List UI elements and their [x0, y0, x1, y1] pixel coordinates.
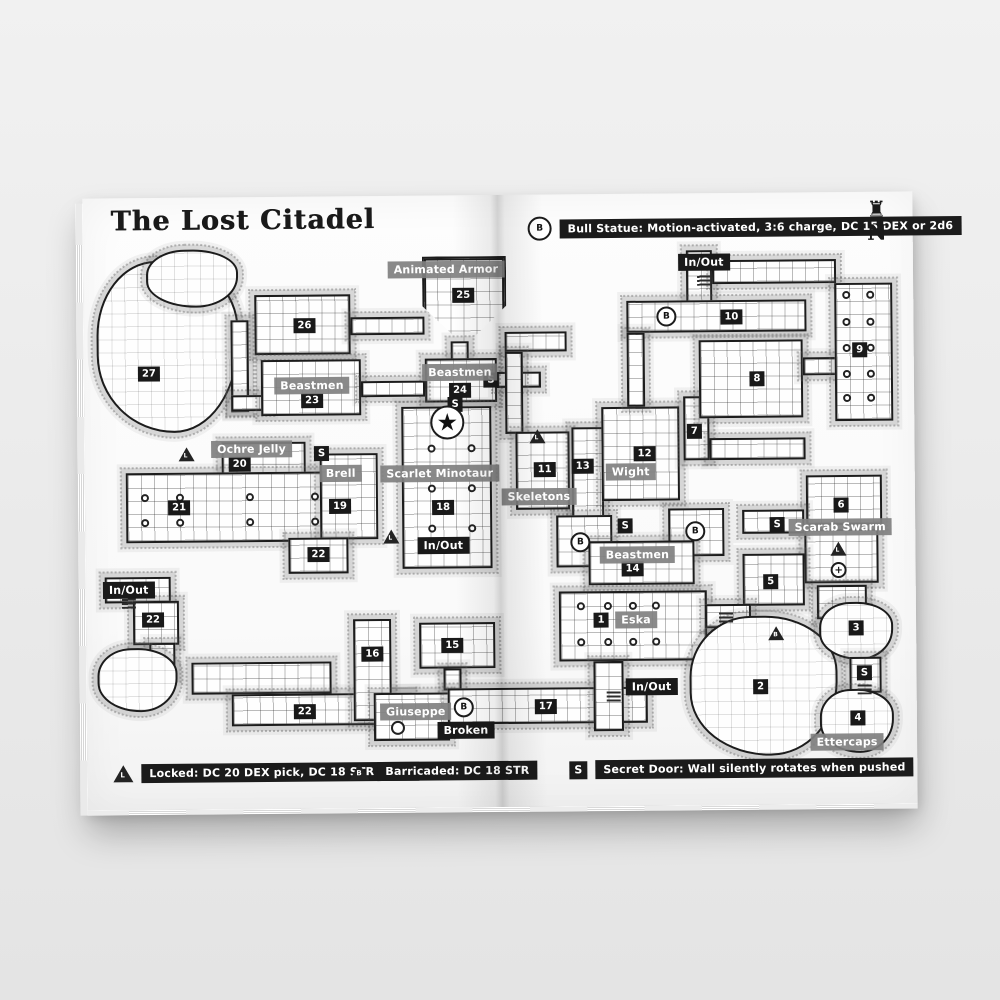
- room-number-19: 19: [329, 499, 351, 514]
- door-marker-l: L: [830, 542, 846, 556]
- room-number-16: 16: [361, 647, 383, 662]
- secret-door-marker: S: [857, 665, 872, 680]
- room-number-2: 2: [753, 679, 768, 694]
- room-number-6: 6: [833, 497, 848, 512]
- hall-21: [126, 471, 341, 543]
- stairs-marker: [697, 275, 711, 286]
- room-label: Wight: [606, 463, 656, 480]
- open-book-spread: The Lost Citadel B Bull Statue: Motion-a…: [82, 191, 917, 810]
- pillar-column: [866, 318, 874, 326]
- map-note-label: In/Out: [418, 537, 470, 554]
- corridor-7-right: [709, 437, 805, 460]
- door-marker-b: B: [768, 626, 784, 640]
- room-number-13: 13: [572, 459, 594, 474]
- corridor-10: [626, 299, 806, 333]
- map-layer: BBBBSSSSSSLLLLB★+25262723241098720211918…: [82, 191, 917, 810]
- corridor-top-right: [712, 259, 836, 284]
- room-label: Eska: [615, 611, 657, 628]
- room-label: Scarab Swarm: [789, 518, 892, 536]
- secret-door-legend-icon: S: [569, 761, 587, 779]
- secret-door-marker: S: [314, 446, 329, 461]
- door-marker-l: L: [529, 429, 545, 443]
- pillar-column: [246, 493, 254, 501]
- compass-north-letter: N: [855, 222, 899, 244]
- bull-statue-marker: B: [685, 521, 705, 541]
- pillar-column: [843, 344, 851, 352]
- citadel-tower-icon: ♜: [854, 200, 898, 222]
- pillar-column: [843, 394, 851, 402]
- pillar-column: [867, 394, 875, 402]
- statue-cross-marker: +: [831, 562, 847, 578]
- pillar-column: [866, 291, 874, 299]
- map-note-label: In/Out: [678, 253, 730, 270]
- room-label: Ettercaps: [810, 733, 883, 751]
- map-note-label: Broken: [437, 722, 494, 739]
- room-number-5: 5: [763, 574, 778, 589]
- room-label: Beastmen: [422, 364, 498, 382]
- room-number-17: 17: [535, 699, 557, 714]
- pillar-column: [428, 445, 436, 453]
- cave-22: [97, 648, 178, 713]
- room-label: Beastmen: [600, 546, 676, 564]
- pillar-column: [468, 444, 476, 452]
- pillar-column: [842, 318, 850, 326]
- pillar-column: [311, 518, 319, 526]
- room-number-23: 23: [301, 393, 323, 408]
- pillar-column: [843, 370, 851, 378]
- pillar-column: [468, 484, 476, 492]
- pillar-column: [311, 493, 319, 501]
- room-number-22: 22: [294, 704, 316, 719]
- room-number-4: 4: [850, 710, 865, 725]
- stairs-marker: [719, 611, 733, 622]
- pillar-column: [141, 494, 149, 502]
- room-number-8: 8: [749, 371, 764, 386]
- pillar-column: [428, 525, 436, 533]
- room-number-22: 22: [307, 547, 329, 562]
- corridor-22-c: [191, 661, 331, 694]
- pillar-column: [629, 638, 637, 646]
- corridor-23-24: [361, 381, 425, 398]
- room-number-1: 1: [593, 613, 608, 628]
- cave-27-top: [146, 249, 239, 308]
- map-note-label: In/Out: [103, 582, 155, 599]
- room-number-15: 15: [441, 638, 463, 653]
- pillar-column: [867, 370, 875, 378]
- stairs-marker: [858, 683, 872, 694]
- door-marker-l: L: [383, 529, 399, 543]
- room-number-18: 18: [432, 500, 454, 515]
- compass-rose: ♜ N: [854, 200, 898, 244]
- room-number-21: 21: [168, 500, 190, 515]
- room-number-11: 11: [534, 462, 556, 477]
- stairs-marker: [122, 598, 136, 609]
- pillar-column: [629, 602, 637, 610]
- bull-statue-marker: B: [656, 306, 676, 326]
- pillar-column: [428, 485, 436, 493]
- room-number-20: 20: [229, 457, 251, 472]
- corridor-center-top: [505, 331, 567, 352]
- corridor-26-25: [350, 317, 424, 336]
- legend-bull-statue-text: Bull Statue: Motion-activated, 3:6 charg…: [560, 215, 962, 238]
- room-number-7: 7: [687, 424, 702, 439]
- corridor-10-down: [627, 333, 646, 407]
- pillar-column: [652, 602, 660, 610]
- pillar-column: [842, 291, 850, 299]
- pillar-column: [867, 344, 875, 352]
- room-label: Giuseppe: [380, 703, 452, 721]
- secret-door-marker: S: [770, 517, 785, 532]
- pillar-column: [604, 638, 612, 646]
- room-label: Brell: [320, 465, 362, 482]
- locked-door-legend-icon: L: [113, 765, 133, 782]
- legend-secret-door: S Secret Door: Wall silently rotates whe…: [569, 757, 913, 779]
- room-number-10: 10: [720, 309, 742, 324]
- corridor-15-down: [443, 668, 461, 690]
- room-number-22: 22: [142, 612, 164, 627]
- barricaded-door-legend-icon: B: [349, 763, 369, 780]
- room-label: Scarlet Minotaur: [380, 465, 499, 483]
- pillar-column: [246, 518, 254, 526]
- pillar-column: [652, 638, 660, 646]
- room-label: Animated Armor: [388, 260, 505, 278]
- room-label: Ochre Jelly: [211, 440, 292, 458]
- pillar-column: [604, 602, 612, 610]
- pillar-column: [468, 524, 476, 532]
- room-number-27: 27: [138, 366, 160, 381]
- room-label: Skeletons: [502, 488, 577, 506]
- corridor-9-8: [803, 357, 837, 375]
- bull-statue-legend-icon: B: [528, 217, 552, 241]
- stairs-marker: [607, 690, 621, 701]
- room-number-12: 12: [634, 446, 656, 461]
- well-circle: [391, 721, 405, 735]
- room-number-3: 3: [849, 620, 864, 635]
- pillar-column: [577, 602, 585, 610]
- room-number-25: 25: [452, 288, 474, 303]
- legend-barricaded: B Barricaded: DC 18 STR: [349, 761, 537, 782]
- map-note-label: In/Out: [626, 678, 678, 695]
- pillar-column: [577, 638, 585, 646]
- bull-statue-marker: B: [570, 532, 590, 552]
- secret-door-marker: S: [618, 518, 633, 533]
- room-number-24: 24: [449, 383, 471, 398]
- bull-statue-marker: B: [454, 697, 474, 717]
- photo-backdrop: The Lost Citadel B Bull Statue: Motion-a…: [0, 0, 1000, 1000]
- room-label: Beastmen: [274, 377, 350, 395]
- room-number-9: 9: [852, 342, 867, 357]
- corridor-13: [571, 427, 604, 521]
- pillar-column: [141, 519, 149, 527]
- room-number-14: 14: [622, 561, 644, 576]
- pillar-column: [176, 519, 184, 527]
- legend-barricaded-text: Barricaded: DC 18 STR: [377, 761, 537, 781]
- door-marker-l: L: [179, 447, 195, 461]
- legend-secret-door-text: Secret Door: Wall silently rotates when …: [595, 757, 913, 779]
- minotaur-star-marker: ★: [430, 405, 464, 439]
- room-number-26: 26: [293, 318, 315, 333]
- corridor-center-v: [505, 352, 524, 434]
- page-title: The Lost Citadel: [110, 204, 375, 237]
